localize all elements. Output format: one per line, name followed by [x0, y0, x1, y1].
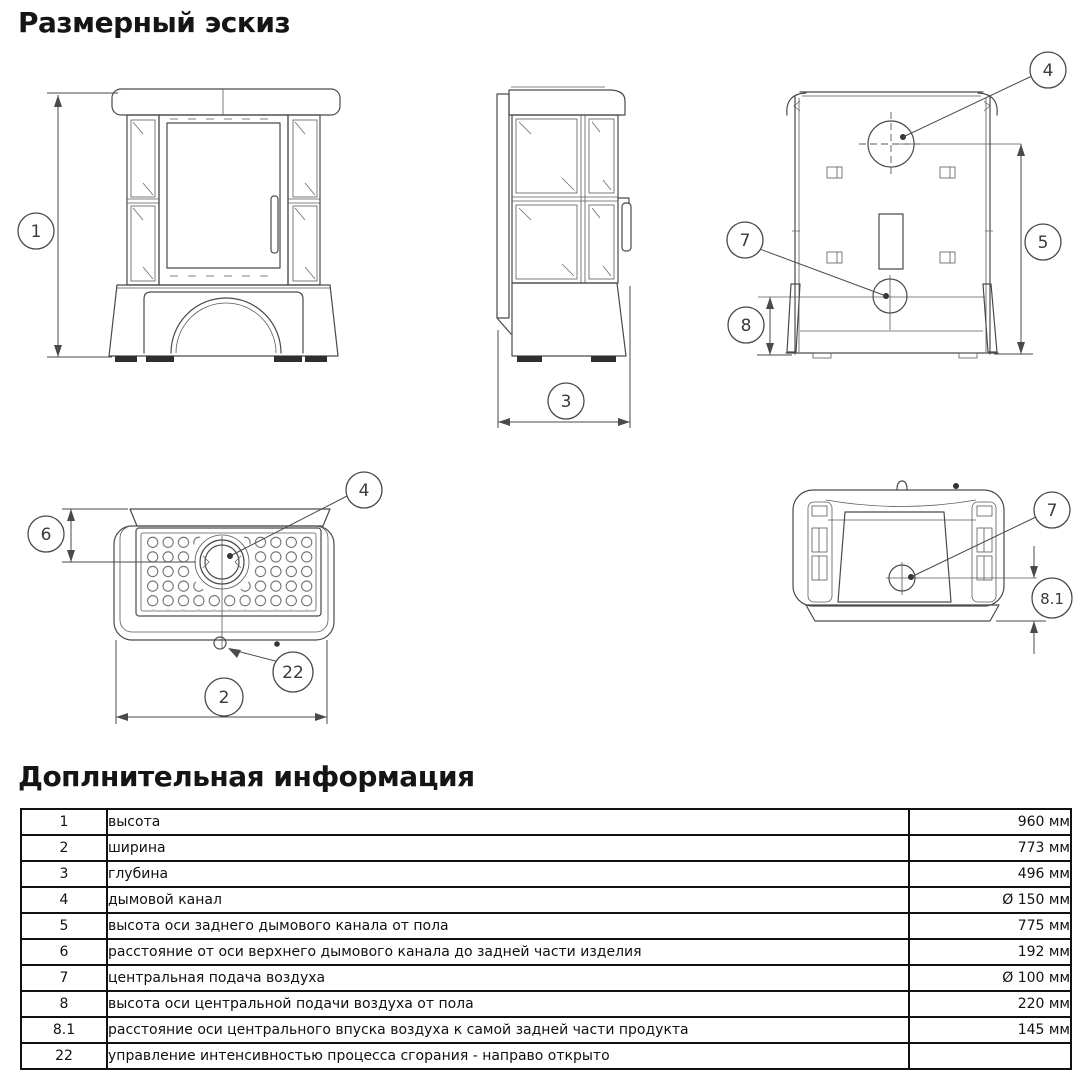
callout-7-bottom: 7: [1034, 492, 1070, 528]
table-row: 8 высота оси центральной подачи воздуха …: [21, 991, 1071, 1017]
callout-6: 6: [28, 516, 64, 552]
callout-8-1-label: 8.1: [1040, 590, 1064, 608]
table-row: 5 высота оси заднего дымового канала от …: [21, 913, 1071, 939]
callout-2-label: 2: [219, 688, 230, 708]
row-description: высота: [107, 809, 909, 835]
callout-3-label: 3: [561, 392, 572, 412]
row-description: дымовой канал: [107, 887, 909, 913]
row-value: 220 мм: [909, 991, 1071, 1017]
front-top-plate: [112, 89, 340, 115]
front-base: [109, 285, 338, 356]
row-number: 2: [21, 835, 107, 861]
combustion-control-knob: [214, 637, 226, 649]
info-title: Доплнительная информация: [18, 760, 475, 793]
perforation-grid: [144, 534, 314, 610]
callout-3: 3: [548, 383, 584, 419]
callout-7: 7: [727, 222, 763, 258]
row-value: 960 мм: [909, 809, 1071, 835]
row-description: расстояние от оси верхнего дымового кана…: [107, 939, 909, 965]
callout-2: 2: [205, 678, 243, 716]
row-description: управление интенсивностью процесса сгора…: [107, 1043, 909, 1069]
dimension-rear-flue-height: [897, 144, 1033, 354]
callout-4: 4: [1030, 52, 1066, 88]
callout-1: 1: [18, 213, 54, 249]
callout-4-top: 4: [346, 472, 382, 508]
front-door-glass: [167, 123, 280, 268]
row-description: глубина: [107, 861, 909, 887]
door-handle: [271, 196, 278, 253]
front-door: [159, 115, 288, 285]
side-back-panel: [497, 94, 509, 318]
dimension-air-to-back: [915, 546, 1046, 654]
base-arch: [171, 298, 281, 353]
table-row: 4 дымовой канал Ø 150 мм: [21, 887, 1071, 913]
row-value: 773 мм: [909, 835, 1071, 861]
row-description: ширина: [107, 835, 909, 861]
table-row: 8.1 расстояние оси центрального впуска в…: [21, 1017, 1071, 1043]
table-row: 3 глубина 496 мм: [21, 861, 1071, 887]
side-base: [512, 283, 626, 356]
row-number: 3: [21, 861, 107, 887]
mount-brackets: [827, 167, 955, 263]
row-value: 145 мм: [909, 1017, 1071, 1043]
callout-22-label: 22: [282, 663, 304, 683]
side-view: 3: [497, 87, 631, 428]
callout-6-label: 6: [41, 525, 52, 545]
row-number: 8: [21, 991, 107, 1017]
callout-1-label: 1: [31, 222, 42, 242]
table-row: 6 расстояние от оси верхнего дымового ка…: [21, 939, 1071, 965]
row-number: 6: [21, 939, 107, 965]
callout-5: 5: [1025, 224, 1061, 260]
callout-4-top-label: 4: [359, 481, 370, 501]
top-view: 4 6 22: [28, 472, 382, 724]
row-description: расстояние оси центрального впуска возду…: [107, 1017, 909, 1043]
row-number: 4: [21, 887, 107, 913]
row-value: 192 мм: [909, 939, 1071, 965]
table-row: 1 высота 960 мм: [21, 809, 1071, 835]
table-row: 22 управление интенсивностью процесса сг…: [21, 1043, 1071, 1069]
table-row: 2 ширина 773 мм: [21, 835, 1071, 861]
row-number: 1: [21, 809, 107, 835]
back-view: 4 5 7: [727, 52, 1066, 358]
callout-8-label: 8: [741, 316, 752, 336]
row-number: 22: [21, 1043, 107, 1069]
callout-7-bottom-label: 7: [1047, 501, 1058, 521]
row-number: 5: [21, 913, 107, 939]
row-description: центральная подача воздуха: [107, 965, 909, 991]
row-description: высота оси центральной подачи воздуха от…: [107, 991, 909, 1017]
row-description: высота оси заднего дымового канала от по…: [107, 913, 909, 939]
callout-8: 8: [728, 307, 764, 343]
bottom-view: 7 8.1: [793, 481, 1072, 654]
row-value: [909, 1043, 1071, 1069]
dimension-height: [47, 93, 118, 357]
table-row: 7 центральная подача воздуха Ø 100 мм: [21, 965, 1071, 991]
row-value: 496 мм: [909, 861, 1071, 887]
product-dimension-sheet: Размерный эскиз: [0, 0, 1086, 1086]
front-view: 1: [18, 89, 340, 362]
row-number: 7: [21, 965, 107, 991]
additional-info-table: 1 высота 960 мм 2 ширина 773 мм 3 глубин…: [20, 808, 1072, 1070]
callout-22: 22: [273, 652, 313, 692]
row-value: 775 мм: [909, 913, 1071, 939]
dimensional-sketch: 1: [0, 0, 1086, 756]
callout-5-label: 5: [1038, 233, 1049, 253]
row-number: 8.1: [21, 1017, 107, 1043]
row-value: Ø 150 мм: [909, 887, 1071, 913]
callout-7-label: 7: [740, 231, 751, 251]
callout-4-label: 4: [1043, 61, 1054, 81]
side-door-handle: [622, 203, 631, 251]
row-value: Ø 100 мм: [909, 965, 1071, 991]
callout-8-1: 8.1: [1032, 578, 1072, 618]
back-slot: [879, 214, 903, 269]
